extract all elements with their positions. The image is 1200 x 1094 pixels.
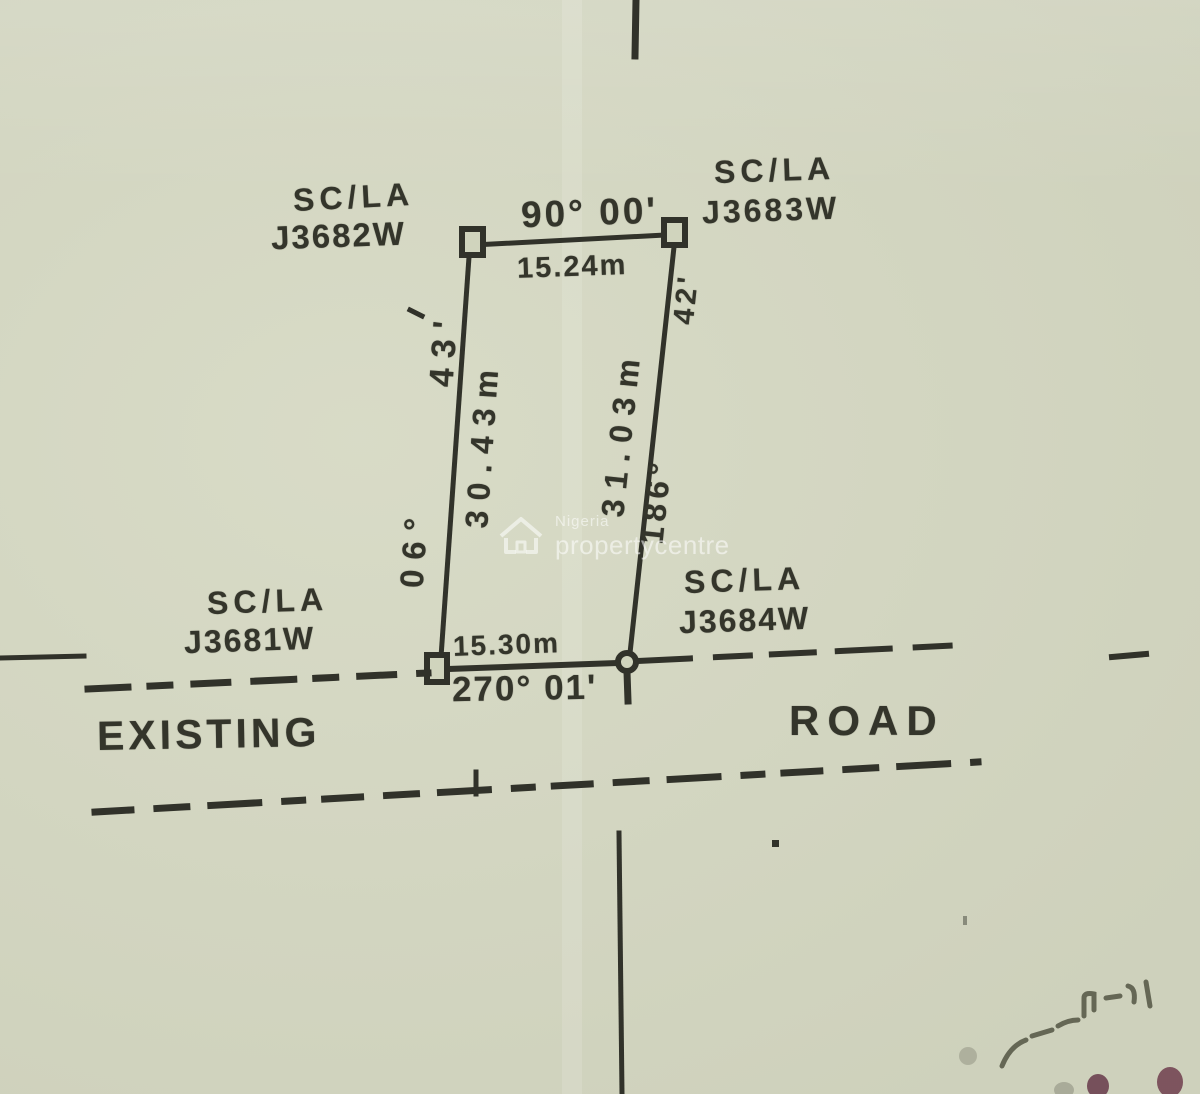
road-label-existing: EXISTING — [97, 712, 321, 757]
beacon-marker-bottom-right — [618, 653, 636, 671]
beacon-label-top-right-number: J3683W — [701, 192, 839, 229]
watermark-text: Nigeria propertycentre — [555, 514, 730, 558]
house-walls — [506, 538, 536, 552]
beacon-marker-bottom-left — [427, 655, 447, 682]
scribble-stroke — [1146, 982, 1150, 1006]
beacon-stem-bottom-right — [627, 672, 628, 701]
stray-dot — [772, 840, 779, 847]
scribble-stroke — [1002, 1040, 1026, 1066]
beacon-label-bottom-left-code: SC/LA — [206, 583, 328, 619]
beacon-label-top-left-code: SC/LA — [292, 178, 415, 216]
bearing-top-edge: 90° 00' — [520, 192, 658, 234]
road-edge-dashed-lower — [95, 762, 978, 812]
beacon-label-top-right-code: SC/LA — [713, 152, 835, 188]
scribble-stroke — [1106, 996, 1120, 998]
watermark: Nigeria propertycentre — [497, 514, 730, 558]
road-edge-dash-far-right — [1112, 654, 1146, 657]
ink-stamp-marks — [1054, 1067, 1183, 1094]
bearing-minutes-right-edge: 42' — [670, 272, 704, 326]
road-edge-dashed-upper-left — [88, 673, 428, 689]
bearing-minutes-left-edge: 43' — [424, 310, 463, 388]
beacon-label-bottom-left-number: J3681W — [183, 622, 315, 659]
distance-top-edge: 15.24m — [517, 251, 628, 284]
road-edge-dashed-upper-right — [638, 645, 963, 661]
beacon-label-bottom-right-number: J3684W — [678, 602, 810, 639]
boundary-line-left-margin — [0, 656, 84, 658]
watermark-brand-bottom: propertycentre — [555, 532, 730, 558]
ink-blob-maroon — [1087, 1074, 1109, 1094]
watermark-brand-top: Nigeria — [555, 514, 730, 529]
grid-tick-top — [635, 0, 636, 56]
beacon-label-bottom-right-code: SC/LA — [683, 562, 805, 598]
ink-blob — [1054, 1082, 1074, 1094]
handwritten-scribble — [959, 982, 1150, 1066]
parcel-edge-top — [474, 235, 665, 245]
pencil-smudge — [959, 1047, 977, 1065]
road-label-road: ROAD — [789, 700, 945, 742]
house-icon — [497, 514, 545, 556]
scribble-stroke — [1032, 1030, 1052, 1036]
distance-bottom-edge: 15.30m — [453, 629, 561, 661]
stray-mark-faint — [963, 916, 967, 925]
section-line-bottom — [619, 833, 622, 1094]
stray-mark-left-edge — [410, 310, 422, 316]
beacon-label-top-left-number: J3682W — [270, 217, 406, 255]
scribble-stroke — [1058, 1020, 1078, 1026]
ink-blob-maroon — [1157, 1067, 1183, 1094]
house-door — [517, 542, 525, 552]
scribble-stroke — [1084, 994, 1094, 1017]
beacon-marker-top-left — [462, 229, 483, 255]
bearing-bottom-edge: 270° 01' — [452, 670, 598, 708]
bearing-degrees-left-edge: 06° — [395, 507, 433, 589]
scribble-stroke — [1128, 986, 1134, 1002]
house-roof — [501, 519, 541, 536]
survey-plan-sheet: SC/LA J3682W SC/LA J3683W SC/LA J3681W S… — [0, 0, 1200, 1094]
beacon-marker-top-right — [664, 220, 685, 245]
